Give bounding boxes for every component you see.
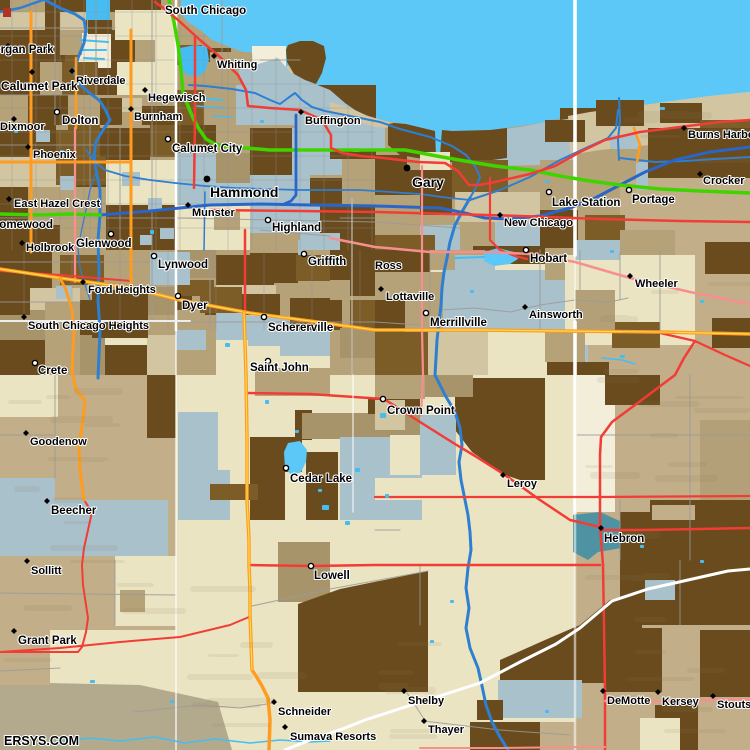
svg-text:East Hazel Crest: East Hazel Crest [14,198,101,210]
svg-text:Thayer: Thayer [428,724,465,736]
svg-text:Calumet City: Calumet City [172,143,243,155]
svg-text:Phoenix: Phoenix [33,149,77,161]
svg-text:Whiting: Whiting [217,59,257,71]
svg-text:Glenwood: Glenwood [76,238,132,250]
svg-text:Schererville: Schererville [268,322,333,334]
svg-text:Griffith: Griffith [308,256,346,268]
svg-text:Shelby: Shelby [408,695,445,707]
svg-text:Crocker: Crocker [703,175,745,187]
svg-text:Dolton: Dolton [62,115,98,127]
svg-text:ERSYS.COM: ERSYS.COM [4,734,79,748]
svg-text:Hegewisch: Hegewisch [148,92,206,104]
svg-text:Stoutsb: Stoutsb [717,699,750,711]
svg-text:Highland: Highland [272,222,321,234]
svg-text:Goodenow: Goodenow [30,436,87,448]
svg-text:Cedar Lake: Cedar Lake [290,473,352,485]
svg-text:Riverdale: Riverdale [76,75,126,87]
svg-text:New Chicago: New Chicago [504,217,573,229]
svg-text:Morgan Park: Morgan Park [0,44,54,56]
svg-text:Sollitt: Sollitt [31,565,62,577]
svg-text:DeMotte: DeMotte [607,695,650,707]
svg-text:Lowell: Lowell [314,570,350,582]
svg-text:Crete: Crete [38,365,67,377]
svg-text:Beecher: Beecher [51,505,97,517]
svg-text:Sumava Resorts: Sumava Resorts [290,731,376,743]
svg-text:Saint John: Saint John [250,362,309,374]
svg-text:Lake Station: Lake Station [552,197,620,209]
svg-text:Hammond: Hammond [210,184,278,200]
svg-text:Holbrook: Holbrook [26,242,75,254]
svg-text:Wheeler: Wheeler [635,278,679,290]
svg-text:Burnham: Burnham [134,111,183,123]
svg-text:Munster: Munster [192,207,236,219]
svg-text:Gary: Gary [412,174,444,190]
svg-text:Lynwood: Lynwood [158,259,208,271]
svg-text:Burns Harbo: Burns Harbo [688,129,750,141]
svg-text:Portage: Portage [632,194,675,206]
svg-text:Lottaville: Lottaville [386,291,434,303]
svg-text:Homewood: Homewood [0,219,53,231]
svg-text:Leroy: Leroy [507,478,538,490]
svg-text:Dyer: Dyer [182,300,208,312]
svg-text:Crown Point: Crown Point [387,405,455,417]
svg-text:Buffington: Buffington [305,115,361,127]
svg-text:Calumet Park: Calumet Park [1,79,78,93]
svg-text:Merrillville: Merrillville [430,317,487,329]
svg-text:Hobart: Hobart [530,253,567,265]
svg-text:Ford Heights: Ford Heights [88,284,156,296]
svg-text:Schneider: Schneider [278,706,332,718]
svg-text:Dixmoor: Dixmoor [0,121,45,133]
svg-text:Ross: Ross [375,260,402,272]
svg-text:Ainsworth: Ainsworth [529,309,583,321]
svg-text:South Chicago Heights: South Chicago Heights [28,320,149,332]
svg-text:Grant Park: Grant Park [18,635,77,647]
svg-text:South Chicago: South Chicago [165,5,246,17]
svg-text:Kersey: Kersey [662,696,700,708]
svg-text:Hebron: Hebron [604,533,644,545]
